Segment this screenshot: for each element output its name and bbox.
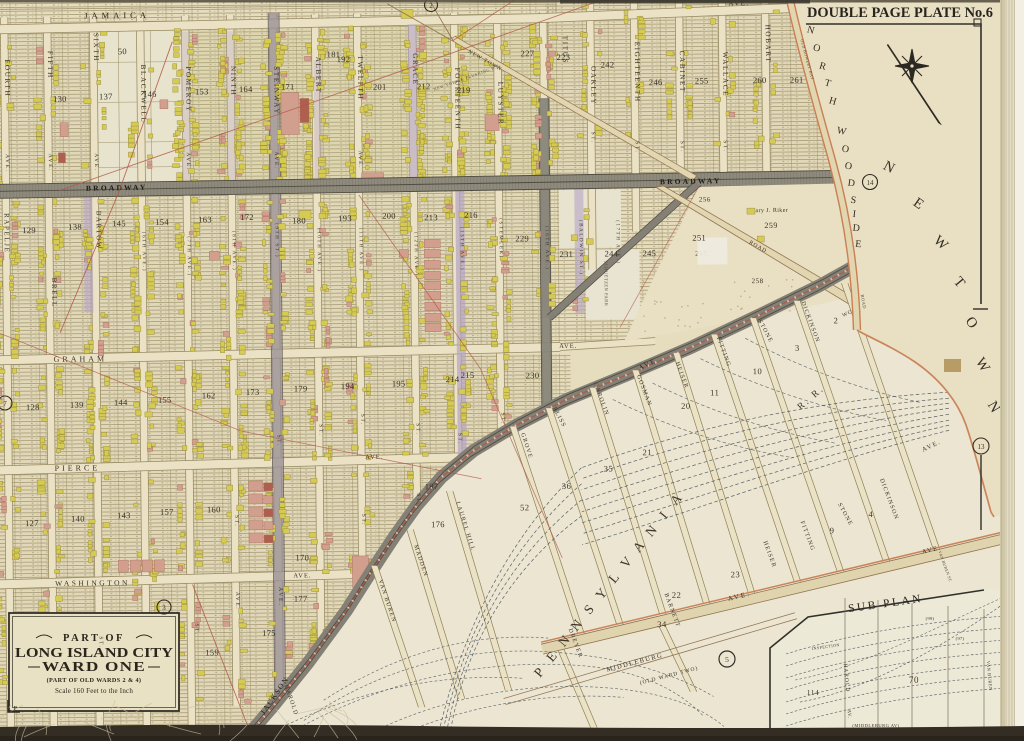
svg-text:P: P	[14, 706, 19, 712]
